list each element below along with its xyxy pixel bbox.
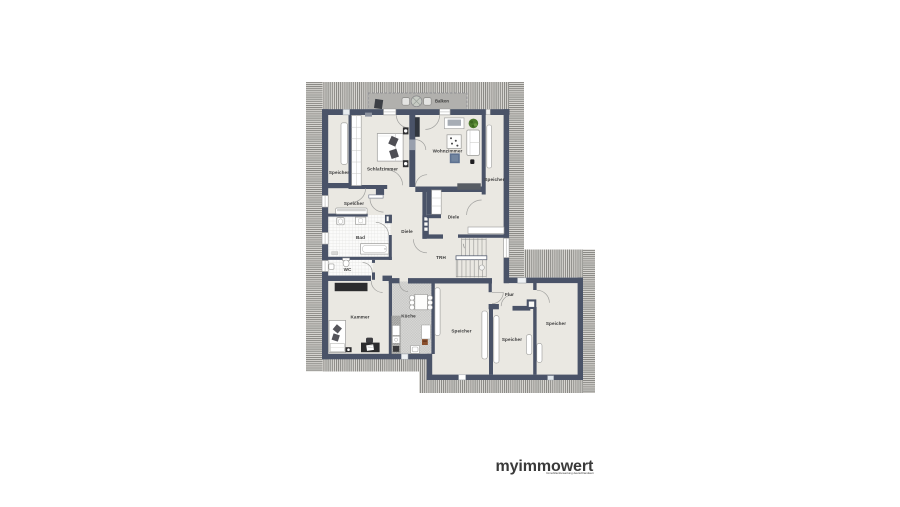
svg-text:Speicher: Speicher bbox=[329, 170, 349, 175]
svg-text:Küche: Küche bbox=[401, 314, 416, 319]
svg-text:Kammer: Kammer bbox=[351, 315, 370, 320]
svg-text:WC: WC bbox=[344, 267, 352, 272]
svg-text:Speicher: Speicher bbox=[546, 321, 566, 326]
svg-text:Wohnzimmer: Wohnzimmer bbox=[433, 149, 463, 154]
svg-text:Diele: Diele bbox=[401, 229, 413, 234]
svg-text:Speicher: Speicher bbox=[502, 337, 522, 342]
svg-text:Flur: Flur bbox=[505, 292, 514, 297]
svg-text:Diele: Diele bbox=[448, 215, 460, 220]
svg-text:Speicher: Speicher bbox=[451, 329, 471, 334]
svg-text:Immobilienbewertung deutschlan: Immobilienbewertung deutschlandweit bbox=[546, 471, 594, 475]
svg-text:Balkon: Balkon bbox=[435, 99, 449, 104]
svg-text:Schlafzimmer: Schlafzimmer bbox=[367, 167, 398, 172]
svg-text:Bad: Bad bbox=[356, 235, 365, 240]
svg-text:Speicher: Speicher bbox=[484, 177, 504, 182]
svg-text:TRH: TRH bbox=[436, 255, 446, 260]
svg-text:Speicher: Speicher bbox=[344, 201, 364, 206]
